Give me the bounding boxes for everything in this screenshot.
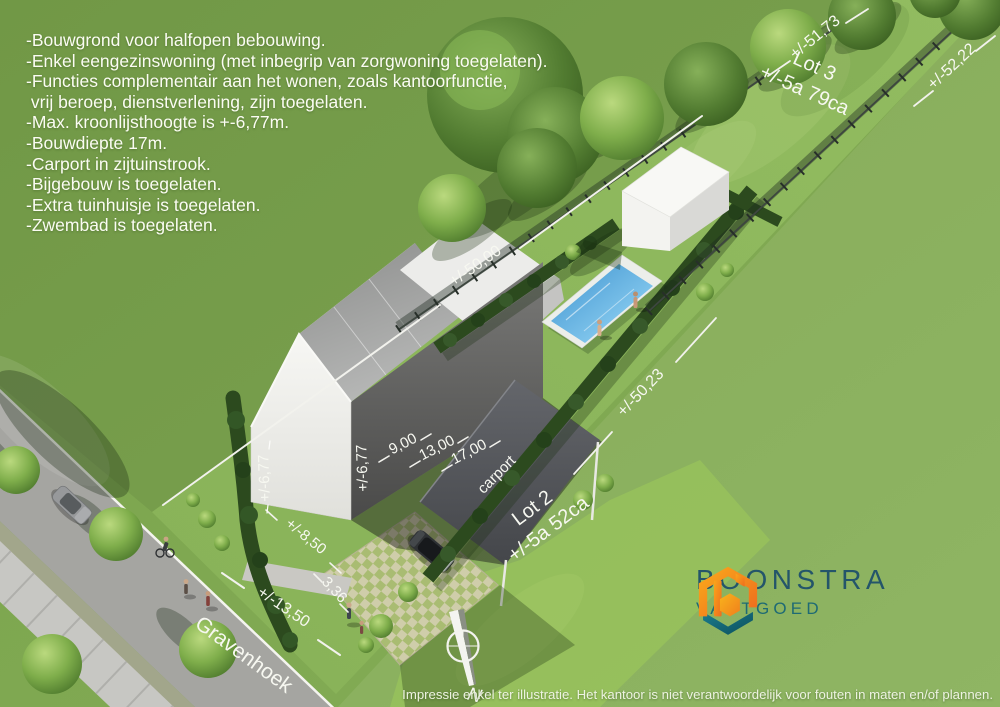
note-line: vrij beroep, dienstverlening, zijn toege… bbox=[26, 92, 547, 113]
site-impression: N +/-50,00 +/-51,73 +/-50,23 +/-52,22 +/… bbox=[0, 0, 1000, 707]
note-line: -Extra tuinhuisje is toegelaten. bbox=[26, 195, 547, 216]
note-line: -Functies complementair aan het wonen, z… bbox=[26, 71, 547, 92]
note-line: -Zwembad is toegelaten. bbox=[26, 215, 547, 236]
note-line: -Max. kroonlijsthoogte is +-6,77m. bbox=[26, 112, 547, 133]
boonstra-logo: BOONSTRA VASTGOED bbox=[696, 564, 889, 619]
dim-facade-height: +/-6,77 bbox=[353, 444, 372, 492]
dim-gable-height: +/-6,77 bbox=[255, 454, 274, 502]
disclaimer-text: Impressie enkel ter illustratie. Het kan… bbox=[402, 687, 993, 702]
note-line: -Bijgebouw is toegelaten. bbox=[26, 174, 547, 195]
planning-notes: -Bouwgrond voor halfopen bebouwing. -Enk… bbox=[26, 30, 547, 236]
note-line: -Carport in zijtuinstrook. bbox=[26, 154, 547, 175]
logo-house-icon bbox=[696, 564, 760, 638]
note-line: -Bouwdiepte 17m. bbox=[26, 133, 547, 154]
note-line: -Enkel eengezinswoning (met inbegrip van… bbox=[26, 51, 547, 72]
note-line: -Bouwgrond voor halfopen bebouwing. bbox=[26, 30, 547, 51]
